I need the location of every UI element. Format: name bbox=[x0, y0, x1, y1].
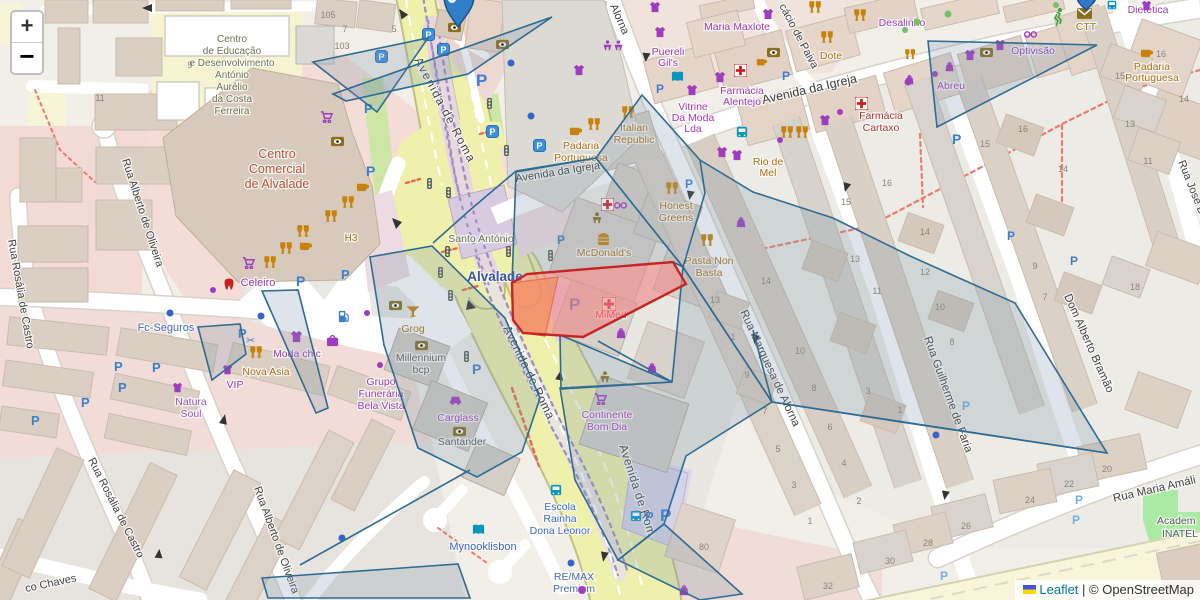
svg-text:P: P bbox=[114, 359, 123, 374]
svg-text:9: 9 bbox=[187, 60, 192, 70]
svg-text:P: P bbox=[1075, 493, 1083, 507]
svg-text:18: 18 bbox=[1130, 282, 1140, 292]
svg-text:16: 16 bbox=[1156, 49, 1166, 59]
svg-text:16: 16 bbox=[882, 178, 892, 188]
svg-text:Santo António: Santo António bbox=[448, 233, 514, 245]
svg-text:Ferreira: Ferreira bbox=[214, 106, 249, 117]
svg-text:Mel: Mel bbox=[760, 167, 777, 179]
svg-text:Bela Vista: Bela Vista bbox=[357, 400, 404, 412]
svg-text:4: 4 bbox=[841, 458, 846, 468]
svg-text:P: P bbox=[341, 267, 350, 282]
svg-text:Academ: Academ bbox=[1157, 515, 1196, 527]
svg-text:P: P bbox=[296, 273, 305, 289]
svg-text:Soul: Soul bbox=[180, 408, 201, 420]
svg-text:P: P bbox=[782, 69, 790, 83]
svg-text:Escola: Escola bbox=[544, 501, 576, 513]
svg-text:António: António bbox=[215, 70, 249, 81]
svg-text:CTT: CTT bbox=[1076, 21, 1097, 33]
svg-text:Dona Leonor: Dona Leonor bbox=[530, 525, 591, 537]
svg-text:RE/MAX: RE/MAX bbox=[554, 571, 594, 583]
svg-text:INATEL: INATEL bbox=[1162, 528, 1198, 540]
svg-text:P: P bbox=[81, 395, 90, 410]
svg-text:Natura: Natura bbox=[175, 396, 207, 408]
svg-text:P: P bbox=[1007, 229, 1015, 243]
svg-text:Rainha: Rainha bbox=[543, 513, 576, 525]
svg-text:Centro: Centro bbox=[217, 34, 247, 45]
svg-text:Centro: Centro bbox=[258, 147, 296, 161]
svg-text:11: 11 bbox=[95, 93, 104, 103]
svg-text:15: 15 bbox=[980, 139, 990, 149]
svg-text:P: P bbox=[152, 360, 161, 375]
svg-text:6: 6 bbox=[827, 422, 832, 432]
svg-text:P: P bbox=[31, 413, 40, 428]
svg-text:Padaria: Padaria bbox=[563, 140, 599, 152]
svg-text:14: 14 bbox=[1179, 94, 1189, 104]
svg-text:P: P bbox=[118, 380, 127, 395]
svg-text:Farmácia: Farmácia bbox=[859, 110, 903, 122]
svg-text:Portuguesa: Portuguesa bbox=[1125, 72, 1179, 84]
svg-text:105: 105 bbox=[320, 10, 335, 20]
svg-text:5: 5 bbox=[775, 444, 780, 454]
svg-text:5: 5 bbox=[391, 24, 396, 34]
svg-text:P: P bbox=[656, 82, 664, 96]
svg-text:Nova Asia: Nova Asia bbox=[242, 366, 289, 378]
svg-text:P: P bbox=[952, 131, 961, 147]
svg-text:Maria Maxlote: Maria Maxlote bbox=[704, 21, 770, 33]
svg-text:Aurélio: Aurélio bbox=[216, 82, 248, 93]
svg-text:P: P bbox=[940, 569, 948, 583]
svg-text:15: 15 bbox=[1115, 71, 1125, 81]
svg-text:24: 24 bbox=[1025, 495, 1035, 505]
svg-text:14: 14 bbox=[1058, 164, 1068, 174]
svg-text:20: 20 bbox=[1102, 464, 1112, 474]
svg-text:Cartaxo: Cartaxo bbox=[863, 122, 900, 134]
svg-text:Gil's: Gil's bbox=[658, 57, 678, 69]
svg-text:Premium: Premium bbox=[553, 583, 595, 595]
svg-text:Fc-Seguros: Fc-Seguros bbox=[138, 322, 195, 334]
svg-text:P: P bbox=[1072, 513, 1080, 527]
svg-text:da Costa: da Costa bbox=[212, 94, 252, 105]
svg-text:P: P bbox=[1070, 254, 1078, 268]
svg-text:✂: ✂ bbox=[246, 335, 255, 347]
svg-text:1: 1 bbox=[807, 516, 812, 526]
svg-text:11: 11 bbox=[1143, 156, 1152, 166]
svg-text:Comercial: Comercial bbox=[249, 162, 305, 176]
svg-text:7: 7 bbox=[1042, 292, 1047, 302]
svg-text:de Alvalade: de Alvalade bbox=[245, 177, 310, 191]
svg-text:30: 30 bbox=[885, 556, 895, 566]
svg-text:3: 3 bbox=[791, 480, 796, 490]
svg-text:26: 26 bbox=[961, 521, 971, 531]
svg-text:80: 80 bbox=[699, 542, 709, 552]
svg-text:Funerária: Funerária bbox=[359, 388, 404, 400]
svg-text:de Educação: de Educação bbox=[203, 46, 262, 57]
svg-text:e Desenvolvimento: e Desenvolvimento bbox=[189, 58, 274, 69]
svg-text:Alentejo: Alentejo bbox=[723, 96, 761, 108]
svg-text:H3: H3 bbox=[345, 233, 358, 244]
svg-text:32: 32 bbox=[823, 581, 833, 591]
svg-text:Grupo: Grupo bbox=[366, 376, 395, 388]
svg-text:P: P bbox=[476, 71, 487, 90]
svg-text:P: P bbox=[366, 163, 375, 179]
svg-text:VIP: VIP bbox=[227, 379, 244, 391]
svg-text:2: 2 bbox=[856, 496, 861, 506]
svg-text:15: 15 bbox=[841, 197, 851, 207]
svg-text:22: 22 bbox=[1064, 479, 1074, 489]
svg-text:7: 7 bbox=[342, 24, 347, 34]
svg-text:Mynooklisbon: Mynooklisbon bbox=[449, 541, 516, 553]
svg-text:28: 28 bbox=[923, 538, 933, 548]
svg-text:103: 103 bbox=[334, 41, 349, 51]
svg-text:14: 14 bbox=[920, 227, 930, 237]
svg-text:16: 16 bbox=[1018, 124, 1028, 134]
svg-text:13: 13 bbox=[1125, 119, 1135, 129]
svg-text:Celeiro: Celeiro bbox=[241, 277, 276, 289]
svg-text:Lda: Lda bbox=[684, 123, 702, 135]
svg-text:9: 9 bbox=[1032, 261, 1037, 271]
svg-text:Dote: Dote bbox=[820, 50, 842, 62]
